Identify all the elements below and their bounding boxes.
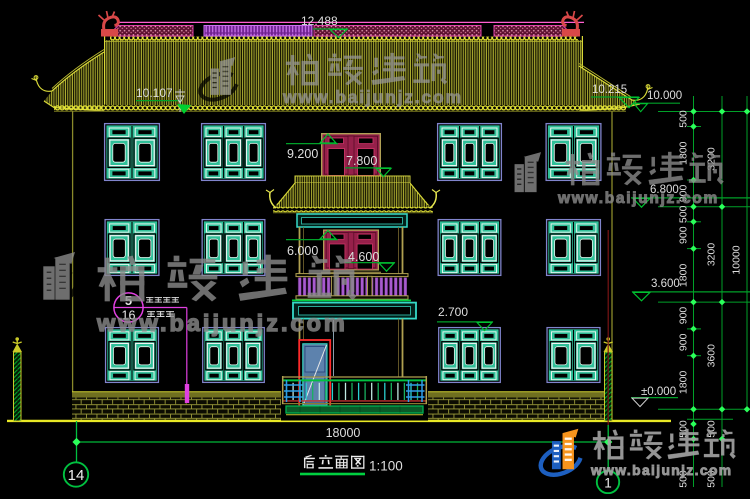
svg-text:10.107: 10.107: [136, 86, 173, 100]
svg-text:www.baijunjz.com: www.baijunjz.com: [282, 87, 463, 107]
svg-text:9.200: 9.200: [287, 147, 318, 161]
svg-text:500: 500: [678, 110, 690, 128]
svg-text:1800: 1800: [678, 264, 690, 288]
svg-text:www.baijunjz.com: www.baijunjz.com: [590, 463, 732, 478]
svg-text:10.000: 10.000: [647, 90, 682, 102]
svg-text:3600: 3600: [706, 344, 718, 368]
svg-text:10.215: 10.215: [592, 84, 627, 96]
svg-text:2.700: 2.700: [438, 305, 468, 319]
svg-text:4.600: 4.600: [348, 250, 379, 264]
svg-text:500: 500: [678, 205, 690, 223]
svg-text:12.488: 12.488: [301, 14, 338, 28]
svg-text:1:100: 1:100: [369, 459, 403, 474]
svg-text:18000: 18000: [326, 426, 361, 440]
svg-text:www.baijunjz.com: www.baijunjz.com: [557, 190, 719, 207]
svg-text:3200: 3200: [706, 243, 718, 267]
svg-text:1800: 1800: [678, 141, 690, 165]
svg-text:7.800: 7.800: [346, 154, 377, 168]
svg-text:900: 900: [678, 333, 690, 351]
svg-text:1800: 1800: [678, 371, 690, 395]
svg-text:900: 900: [678, 226, 690, 244]
svg-text:10000: 10000: [731, 245, 743, 274]
svg-text:14: 14: [68, 467, 85, 484]
svg-text:www.baijunjz.com: www.baijunjz.com: [96, 310, 348, 336]
svg-text:±0.000: ±0.000: [641, 386, 676, 398]
svg-text:3.600: 3.600: [651, 278, 680, 290]
svg-text:900: 900: [678, 307, 690, 325]
